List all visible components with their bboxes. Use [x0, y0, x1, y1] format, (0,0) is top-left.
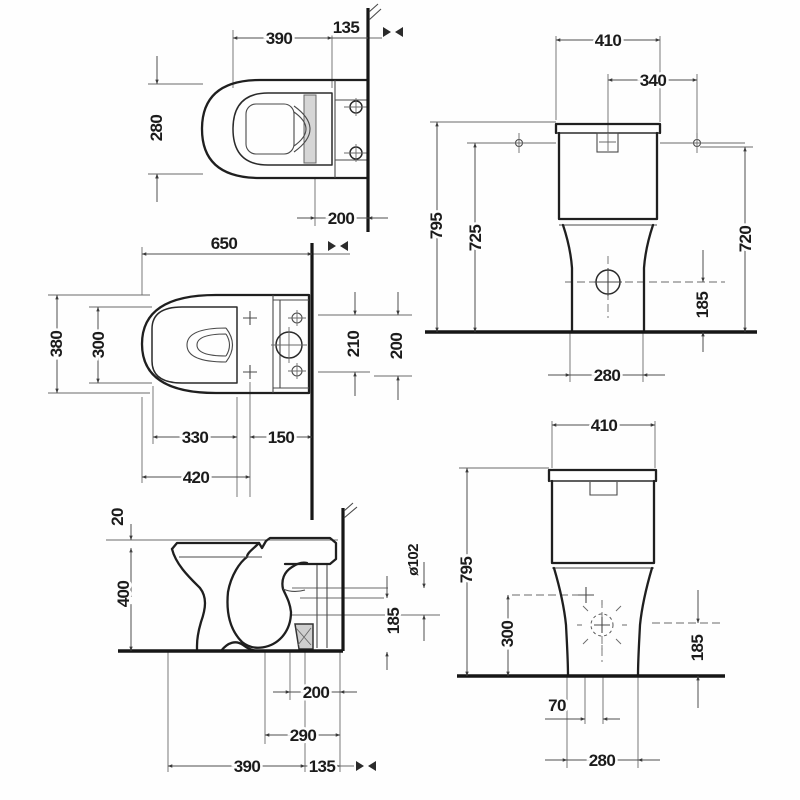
flush-valve-hole	[271, 310, 307, 379]
lid-inner-panel	[246, 104, 294, 154]
flush-button	[590, 482, 617, 495]
tank-bolt-holes	[344, 98, 368, 162]
dim-seat-length: 390	[266, 29, 293, 48]
dim-outlet-diameter: ø102	[405, 544, 422, 576]
fixing-crosshair-right	[687, 133, 707, 153]
dim-inner-length: 330	[182, 428, 209, 447]
dim-right-height: 720	[736, 226, 755, 253]
dim-span-200: 200	[387, 333, 406, 360]
dim-seat-to-wall: 135	[333, 18, 360, 37]
dim-seat-thickness: 20	[108, 508, 127, 526]
dim-total-height: 795	[457, 557, 476, 584]
dim-inlet-height: 185	[693, 292, 712, 319]
dim-total-height: 795	[427, 213, 446, 240]
dim-base-width: 280	[594, 366, 621, 385]
dim-front-to-hinge: 420	[183, 468, 210, 487]
dim-tank-width: 410	[591, 416, 618, 435]
view-rear: 410 340 795 725 720 185 280	[425, 31, 757, 385]
dim-total-depth: 650	[211, 234, 238, 253]
toilet-dimension-drawing: 390 135 280 200	[0, 0, 800, 800]
dim-drain-to-wall: 200	[303, 683, 330, 702]
view-front: 410 795 300 185 70 280	[457, 416, 725, 770]
view-side-section: 20 400 ø102 185 200 290 390 135	[106, 503, 440, 776]
dim-flange-to-wall: 135	[309, 757, 336, 776]
view-top-seat-closed: 390 135 280 200	[147, 4, 403, 232]
wall-break-icon	[383, 27, 403, 37]
dim-rear-150: 150	[268, 428, 295, 447]
fixing-crosshair-left	[509, 133, 529, 153]
drain-mark	[594, 268, 622, 296]
dim-span-210: 210	[344, 331, 363, 358]
dim-tank-height: 725	[466, 225, 485, 252]
dim-fixing-span: 340	[640, 71, 667, 90]
wall-break-icon	[356, 761, 376, 771]
dim-supply-height: 300	[498, 621, 517, 648]
dim-outlet-height: 185	[384, 608, 403, 635]
dim-body-width: 380	[47, 331, 66, 358]
dim-tank-width: 410	[595, 31, 622, 50]
dim-fixing-to-wall: 290	[290, 726, 317, 745]
tank-fixing-box	[597, 133, 618, 152]
dim-base-width: 280	[589, 751, 616, 770]
bowl-water-contour	[187, 328, 233, 362]
dim-front-to-drain: 390	[234, 757, 261, 776]
supply-cross-mark	[578, 587, 594, 603]
dim-inner-width: 300	[89, 332, 108, 359]
dim-hinge-to-wall: 200	[328, 209, 355, 228]
dim-body-width: 280	[147, 115, 166, 142]
technical-drawing-page: 390 135 280 200	[0, 0, 800, 800]
seat-hinge-marks	[243, 311, 257, 379]
view-top-seat-open: 650 380 300 210 200 330 150 420	[47, 234, 412, 520]
wall-break-icon	[328, 241, 348, 251]
dim-drain-offset: 70	[548, 696, 566, 715]
dim-inlet-height: 185	[688, 635, 707, 662]
dim-rim-height: 400	[114, 581, 133, 608]
